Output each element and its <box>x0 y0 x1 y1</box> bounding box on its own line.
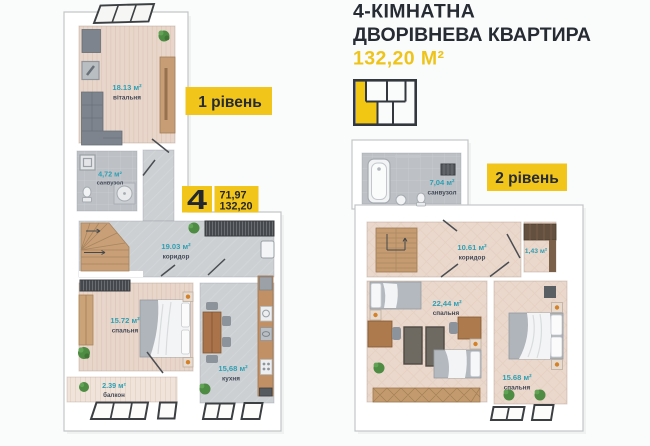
svg-text:спальня: спальня <box>112 328 139 335</box>
svg-text:7,04 м²: 7,04 м² <box>429 178 455 187</box>
svg-text:вітальня: вітальня <box>113 94 141 102</box>
svg-text:10.61 м²: 10.61 м² <box>457 243 487 252</box>
svg-text:балкон: балкон <box>103 392 125 399</box>
svg-text:2.39 м²: 2.39 м² <box>102 381 126 390</box>
svg-text:18.13 м²: 18.13 м² <box>112 83 142 92</box>
svg-text:15,68 м²: 15,68 м² <box>218 364 248 373</box>
svg-text:коридор: коридор <box>163 254 190 261</box>
svg-text:санвузол: санвузол <box>427 190 456 197</box>
svg-text:спальня: спальня <box>433 310 460 317</box>
svg-text:132,20 М²: 132,20 М² <box>353 48 445 70</box>
svg-text:132,20: 132,20 <box>220 200 253 212</box>
svg-text:коридор: коридор <box>459 255 486 262</box>
svg-text:4-КІМНАТНА: 4-КІМНАТНА <box>353 1 475 23</box>
svg-text:4: 4 <box>187 184 208 215</box>
svg-text:15.68 м²: 15.68 м² <box>502 373 532 382</box>
svg-text:кухня: кухня <box>222 376 240 383</box>
svg-text:2 рівень: 2 рівень <box>495 170 559 187</box>
svg-text:санвузол: санвузол <box>97 181 124 187</box>
svg-text:ДВОРІВНЕВА КВАРТИРА: ДВОРІВНЕВА КВАРТИРА <box>353 24 591 46</box>
svg-text:4,72 м²: 4,72 м² <box>98 170 122 179</box>
svg-text:1 рівень: 1 рівень <box>198 94 262 111</box>
svg-text:22,44 м²: 22,44 м² <box>432 299 462 308</box>
svg-text:15.72 м²: 15.72 м² <box>110 316 140 325</box>
svg-text:19.03 м²: 19.03 м² <box>161 242 191 251</box>
svg-text:1,43 м²: 1,43 м² <box>525 248 548 255</box>
